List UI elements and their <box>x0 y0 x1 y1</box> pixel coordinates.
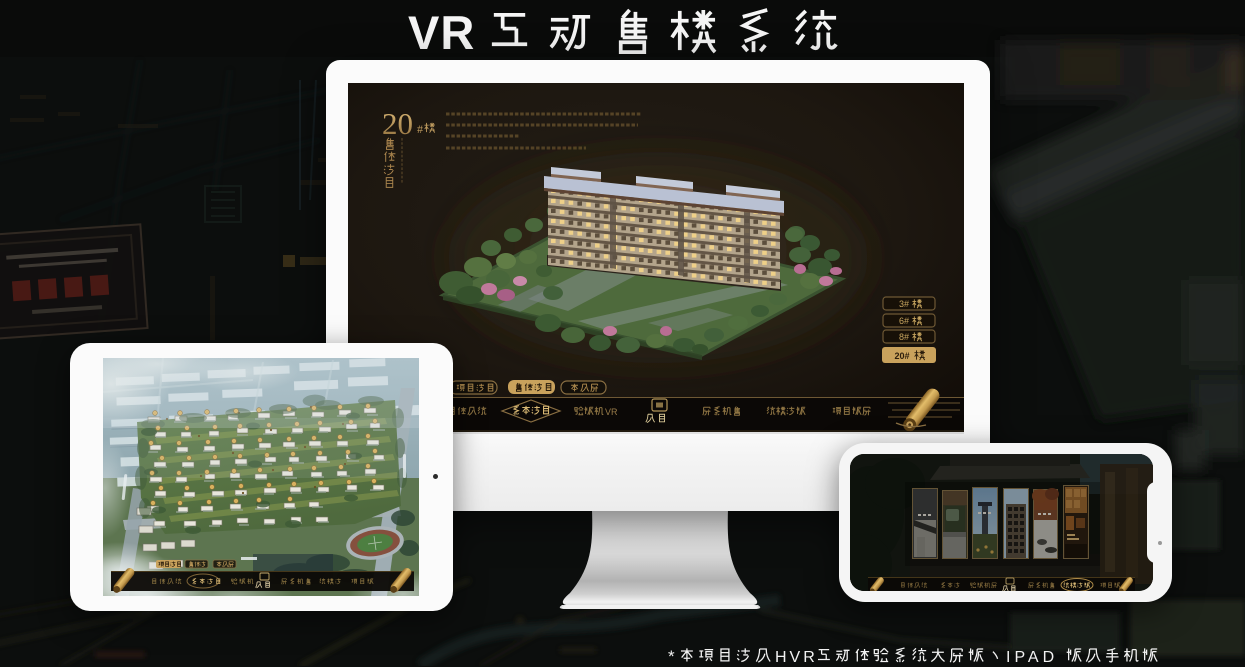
svg-text:IPAD: IPAD <box>1006 649 1058 666</box>
svg-text:20#: 20# <box>894 351 909 361</box>
svg-text:6#: 6# <box>899 316 909 326</box>
svg-text:VR: VR <box>605 407 618 417</box>
svg-text:*: * <box>668 647 675 666</box>
svg-text:8#: 8# <box>899 332 909 342</box>
svg-text:VR: VR <box>408 6 475 57</box>
svg-text:20: 20 <box>382 106 413 141</box>
svg-text:3#: 3# <box>899 299 909 309</box>
svg-text:#: # <box>417 122 423 136</box>
svg-text:HVR: HVR <box>775 649 818 666</box>
